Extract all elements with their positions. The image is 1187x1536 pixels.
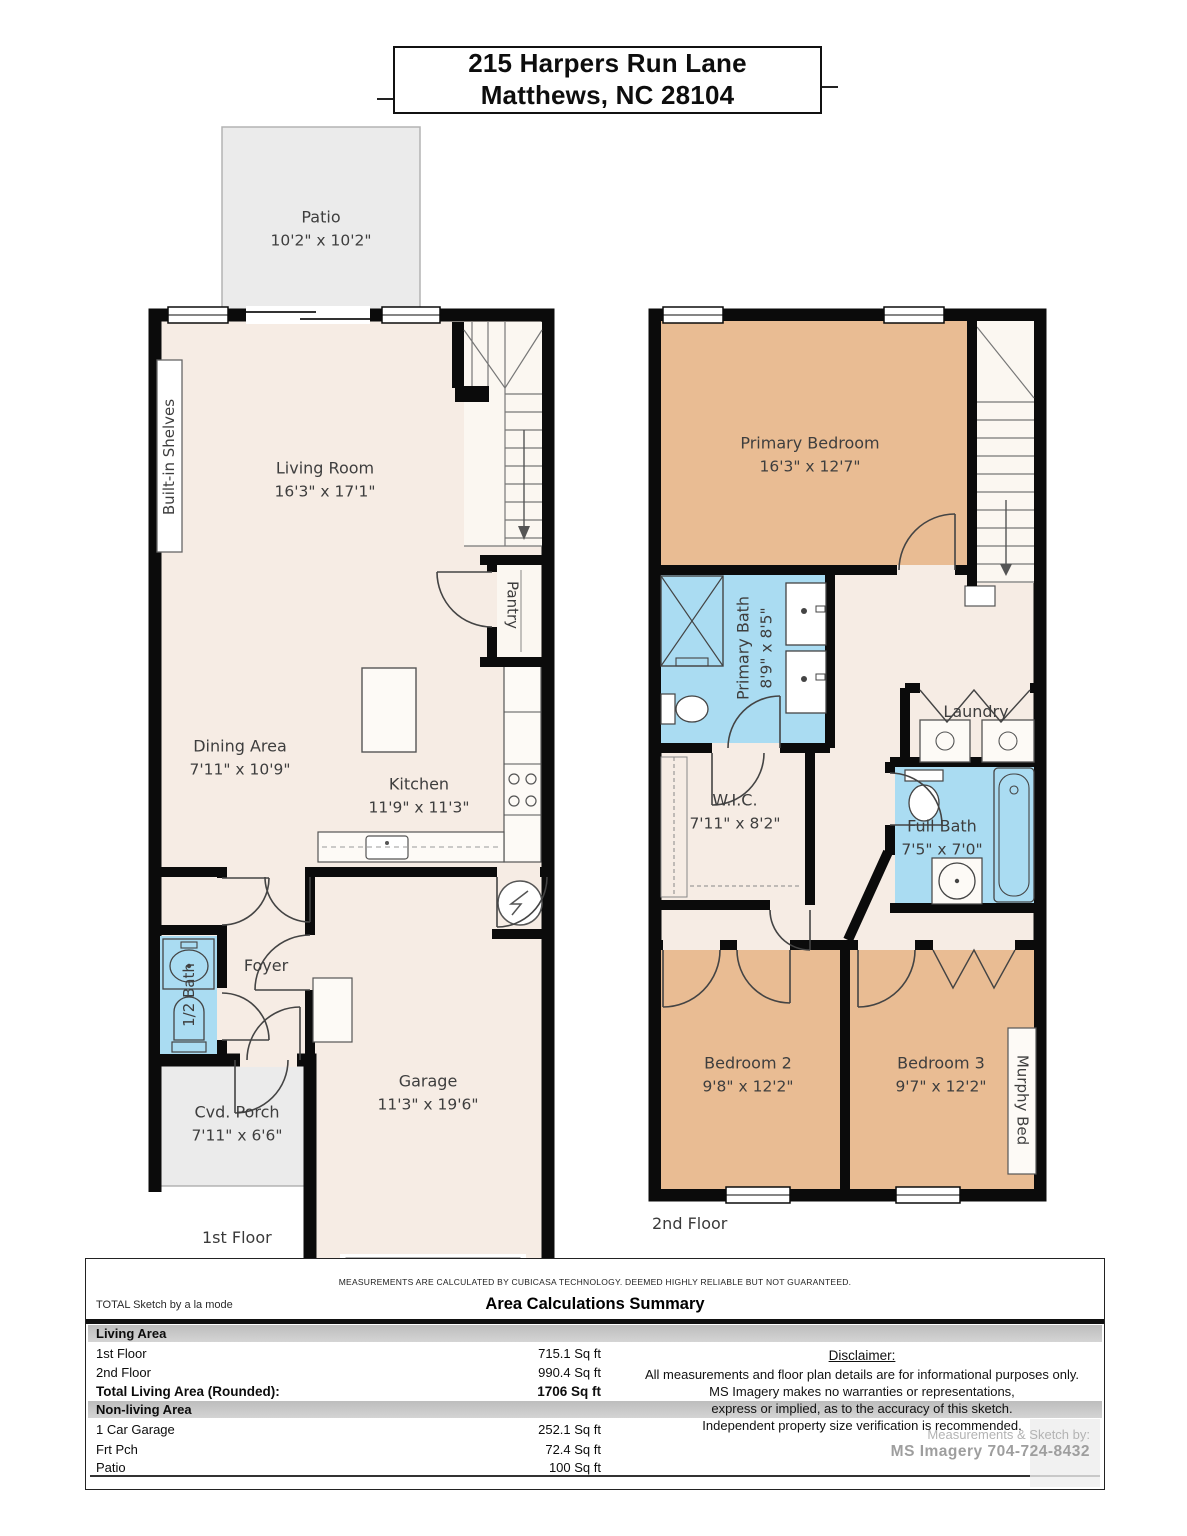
measurements-note: MEASUREMENTS ARE CALCULATED BY CUBICASA … (86, 1277, 1104, 1287)
room-label-half-bath: 1/2 Bath (178, 963, 201, 1027)
row-value: 1706 Sq ft (88, 1382, 601, 1401)
disclaimer-line: express or implied, as to the accuracy o… (631, 1400, 1093, 1417)
disclaimer-block: Disclaimer: All measurements and floor p… (631, 1347, 1093, 1434)
room-label-primary-bedroom: Primary Bedroom16'3" x 12'7" (740, 431, 879, 478)
second-floor-tag: 2nd Floor (652, 1214, 727, 1233)
credit-block: Measurements & Sketch by: MS Imagery 704… (891, 1427, 1090, 1461)
room-label-wic: W.I.C.7'11" x 8'2" (689, 788, 780, 835)
room-label-garage: Garage11'3" x 19'6" (378, 1069, 479, 1116)
table-bottom-line (90, 1475, 1100, 1477)
room-label-laundry: Laundry (943, 700, 1008, 724)
first-floor-tag: 1st Floor (202, 1228, 272, 1247)
room-label-built-in-shelves: Built-in Shelves (158, 399, 181, 515)
room-label-bedroom-2: Bedroom 29'8" x 12'2" (702, 1051, 793, 1098)
room-label-foyer: Foyer (244, 954, 288, 978)
room-label-primary-bath: Primary Bath8'9" x 8'5" (731, 596, 778, 700)
room-label-covered-porch: Cvd. Porch7'11" x 6'6" (191, 1100, 282, 1147)
room-label-murphy-bed: Murphy Bed (1011, 1055, 1034, 1145)
section-header-living-area: Living Area (88, 1325, 1102, 1342)
address-line-1: 215 Harpers Run Lane (468, 48, 747, 80)
summary-title: Area Calculations Summary (86, 1295, 1104, 1314)
room-label-patio: Patio10'2" x 10'2" (271, 205, 372, 252)
room-label-full-bath: Full Bath7'5" x 7'0" (901, 814, 982, 861)
row-value: 715.1 Sq ft (88, 1344, 601, 1363)
area-calculations-summary: MEASUREMENTS ARE CALCULATED BY CUBICASA … (85, 1258, 1105, 1490)
disclaimer-line: MS Imagery makes no warranties or repres… (631, 1383, 1093, 1400)
address-title-box: 215 Harpers Run Lane Matthews, NC 28104 (393, 46, 822, 114)
credit-label: Measurements & Sketch by: (891, 1427, 1090, 1443)
title-connector-right (822, 86, 838, 88)
room-label-dining-area: Dining Area7'11" x 10'9" (190, 734, 291, 781)
room-label-pantry: Pantry (501, 581, 524, 629)
room-label-living-room: Living Room16'3" x 17'1" (275, 456, 376, 503)
room-label-kitchen: Kitchen11'9" x 11'3" (369, 772, 470, 819)
disclaimer-title: Disclaimer: (631, 1347, 1093, 1364)
row-value: 72.4 Sq ft (88, 1440, 601, 1459)
credit-name: MS Imagery 704-724-8432 (891, 1443, 1090, 1461)
title-connector-left (377, 98, 393, 100)
row-value: 990.4 Sq ft (88, 1363, 601, 1382)
room-label-bedroom-3: Bedroom 39'7" x 12'2" (895, 1051, 986, 1098)
disclaimer-line: All measurements and floor plan details … (631, 1366, 1093, 1383)
address-line-2: Matthews, NC 28104 (481, 80, 735, 112)
floorplan-page: 215 Harpers Run Lane Matthews, NC 28104 … (0, 0, 1187, 1536)
row-value: 252.1 Sq ft (88, 1420, 601, 1439)
summary-divider (86, 1319, 1104, 1324)
